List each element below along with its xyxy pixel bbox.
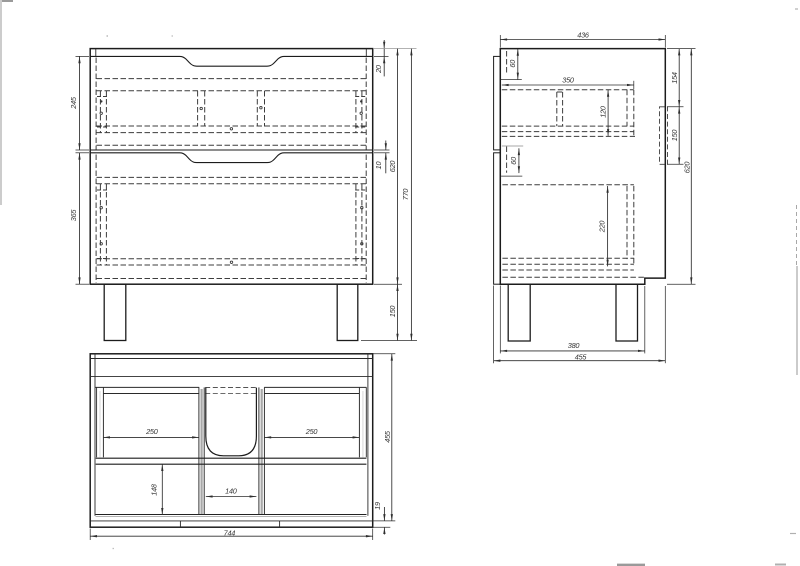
svg-text:150: 150 [670,130,679,142]
svg-text:250: 250 [305,427,318,436]
svg-text:250: 250 [145,427,158,436]
svg-text:455: 455 [383,430,392,443]
svg-text:245: 245 [69,96,78,110]
svg-text:60: 60 [508,60,517,68]
svg-text:10: 10 [374,162,383,170]
svg-text:770: 770 [401,189,410,201]
svg-text:60: 60 [509,157,518,165]
svg-text:120: 120 [599,106,608,118]
svg-text:380: 380 [568,341,580,350]
svg-text:154: 154 [670,72,679,84]
svg-text:220: 220 [598,221,607,234]
svg-text:20: 20 [374,65,383,74]
svg-text:19: 19 [373,502,382,510]
svg-text:436: 436 [577,31,590,40]
svg-text:350: 350 [562,75,574,84]
svg-text:620: 620 [388,161,397,173]
svg-text:140: 140 [225,487,237,496]
svg-text:365: 365 [69,209,78,222]
svg-text:455: 455 [575,352,588,361]
svg-text:620: 620 [683,162,692,174]
svg-text:148: 148 [149,483,158,496]
svg-text:150: 150 [388,306,397,318]
svg-text:744: 744 [224,529,236,538]
